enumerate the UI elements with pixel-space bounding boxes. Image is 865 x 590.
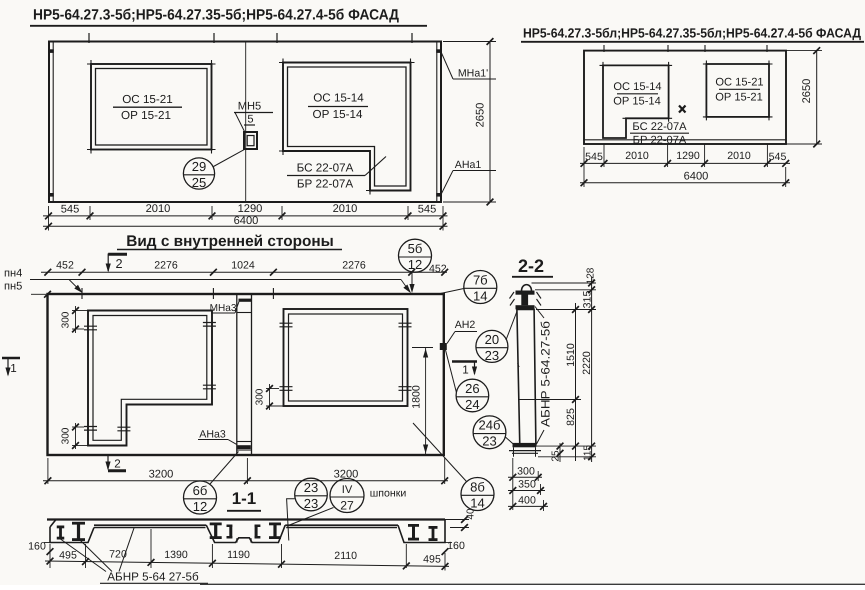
svg-text:НР5-64.27.3-5б;НР5-64.27.35-5б: НР5-64.27.3-5б;НР5-64.27.35-5б;НР5-64.27… (33, 8, 399, 24)
svg-text:128: 128 (586, 267, 597, 284)
svg-text:2010: 2010 (625, 150, 649, 162)
svg-text:ОР 15-14: ОР 15-14 (313, 108, 363, 121)
svg-text:5: 5 (247, 114, 253, 126)
svg-text:160: 160 (28, 541, 46, 553)
svg-text:20: 20 (485, 332, 500, 347)
svg-text:2110: 2110 (334, 550, 357, 562)
svg-text:МНа3: МНа3 (210, 303, 237, 314)
svg-text:АБНР 5-64.27-5б: АБНР 5-64.27-5б (539, 321, 553, 427)
svg-text:6400: 6400 (684, 171, 709, 183)
svg-text:545: 545 (61, 204, 80, 216)
svg-text:2276: 2276 (154, 260, 178, 272)
svg-text:12: 12 (193, 499, 208, 514)
svg-text:452: 452 (56, 260, 74, 272)
svg-text:ОР 15-14: ОР 15-14 (613, 96, 661, 108)
svg-text:2: 2 (114, 458, 120, 471)
svg-text:1290: 1290 (676, 150, 700, 162)
svg-text:2010: 2010 (727, 150, 751, 162)
svg-text:1390: 1390 (164, 549, 188, 561)
svg-text:2: 2 (115, 256, 122, 271)
svg-text:25: 25 (551, 450, 562, 462)
svg-text:1800: 1800 (411, 385, 423, 409)
svg-text:БР 22-07А: БР 22-07А (633, 135, 687, 147)
svg-text:2-2: 2-2 (518, 256, 544, 276)
svg-text:ОР 15-21: ОР 15-21 (121, 109, 171, 122)
svg-text:14: 14 (473, 288, 488, 303)
svg-text:БР 22-07А: БР 22-07А (297, 178, 353, 191)
svg-text:545: 545 (585, 151, 603, 163)
svg-text:1290: 1290 (238, 203, 263, 215)
svg-text:300: 300 (61, 427, 72, 444)
svg-text:1-1: 1-1 (232, 489, 256, 508)
svg-text:26: 26 (465, 381, 480, 396)
svg-text:пн4: пн4 (4, 268, 22, 280)
svg-text:23: 23 (485, 348, 500, 363)
svg-text:2276: 2276 (342, 260, 366, 272)
svg-text:АБНР 5-64 27-5б: АБНР 5-64 27-5б (107, 571, 199, 584)
svg-text:НР5-64.27.3-5бл;НР5-64.27.35-5: НР5-64.27.3-5бл;НР5-64.27.35-5бл;НР5-64.… (523, 26, 862, 41)
svg-text:пн5: пн5 (4, 281, 22, 293)
svg-text:2650: 2650 (475, 103, 487, 128)
svg-text:6400: 6400 (234, 215, 259, 227)
svg-text:1: 1 (10, 362, 16, 375)
svg-text:АНа1: АНа1 (455, 159, 482, 171)
svg-text:495: 495 (423, 554, 441, 566)
svg-text:7б: 7б (473, 272, 488, 287)
svg-text:495: 495 (59, 550, 77, 562)
svg-text:40: 40 (466, 508, 477, 520)
svg-text:ОС 15-21: ОС 15-21 (715, 77, 763, 89)
svg-text:ОР 15-21: ОР 15-21 (715, 92, 763, 104)
svg-text:1: 1 (462, 364, 468, 377)
svg-text:АН2: АН2 (455, 319, 476, 331)
svg-text:452: 452 (429, 263, 447, 275)
svg-text:МНа1': МНа1' (458, 68, 488, 80)
svg-text:315: 315 (582, 291, 594, 309)
svg-text:шпонки: шпонки (370, 488, 407, 500)
svg-text:545: 545 (769, 151, 787, 163)
svg-text:12: 12 (408, 257, 423, 272)
svg-text:3200: 3200 (149, 469, 174, 481)
svg-text:2010: 2010 (333, 203, 358, 215)
svg-text:ОС 15-14: ОС 15-14 (313, 92, 364, 105)
svg-text:27: 27 (340, 499, 354, 513)
svg-text:АНа3: АНа3 (199, 429, 226, 441)
svg-text:825: 825 (565, 408, 577, 426)
svg-text:545: 545 (418, 204, 437, 216)
svg-text:300: 300 (517, 466, 535, 478)
svg-text:МН5: МН5 (238, 101, 262, 113)
svg-text:24б: 24б (479, 418, 501, 433)
svg-text:115: 115 (583, 445, 594, 461)
svg-text:300: 300 (255, 388, 266, 405)
svg-text:1024: 1024 (231, 260, 255, 272)
svg-text:23: 23 (304, 496, 319, 511)
svg-text:ОС 15-21: ОС 15-21 (122, 93, 173, 106)
svg-text:350: 350 (518, 479, 536, 491)
svg-text:14: 14 (470, 495, 485, 510)
svg-text:23: 23 (304, 480, 319, 495)
svg-text:2220: 2220 (581, 351, 593, 375)
svg-text:6б: 6б (193, 483, 208, 498)
svg-text:БС 22-07А: БС 22-07А (632, 121, 687, 133)
svg-text:ОС 15-14: ОС 15-14 (613, 81, 661, 93)
svg-text:25: 25 (192, 175, 207, 190)
svg-text:720: 720 (109, 549, 127, 561)
svg-text:БС 22-07А: БС 22-07А (297, 162, 354, 175)
svg-text:2010: 2010 (146, 203, 171, 215)
svg-text:1190: 1190 (227, 549, 250, 561)
svg-text:23: 23 (482, 434, 497, 449)
svg-text:IV: IV (342, 484, 353, 496)
svg-text:400: 400 (518, 495, 536, 507)
svg-text:8б: 8б (470, 479, 485, 494)
svg-text:1510: 1510 (565, 343, 577, 367)
svg-text:24: 24 (465, 397, 480, 412)
svg-text:160: 160 (447, 540, 465, 552)
svg-text:Вид с внутренней стороны: Вид с внутренней стороны (126, 233, 333, 250)
svg-text:300: 300 (61, 311, 72, 328)
svg-text:2650: 2650 (801, 79, 813, 104)
svg-text:29: 29 (192, 159, 207, 174)
svg-text:5б: 5б (408, 241, 423, 256)
